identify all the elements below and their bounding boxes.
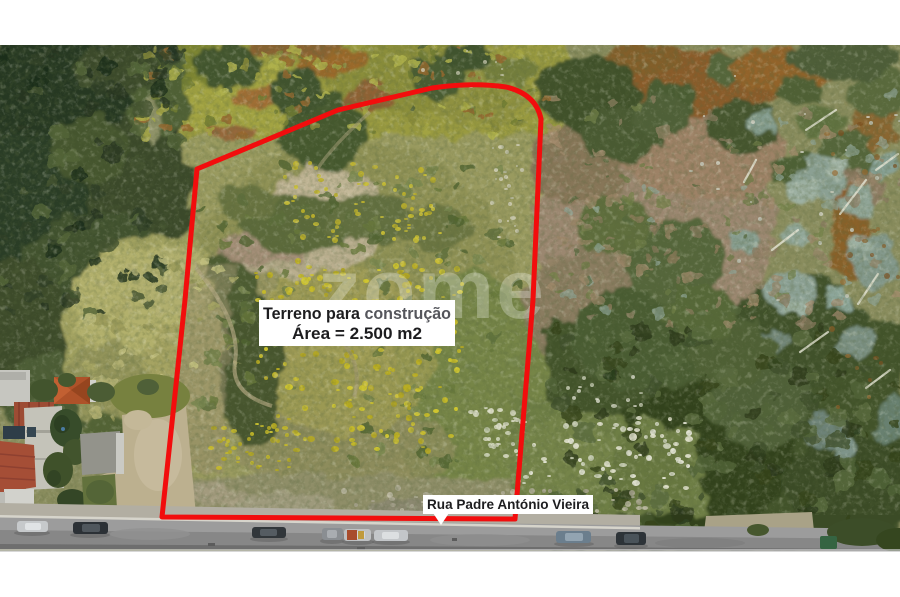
- svg-text:Área = 2.500 m2: Área = 2.500 m2: [292, 324, 422, 343]
- svg-text:Rua Padre António Vieira: Rua Padre António Vieira: [427, 496, 589, 512]
- svg-text:Terreno para construção: Terreno para construção: [263, 304, 451, 323]
